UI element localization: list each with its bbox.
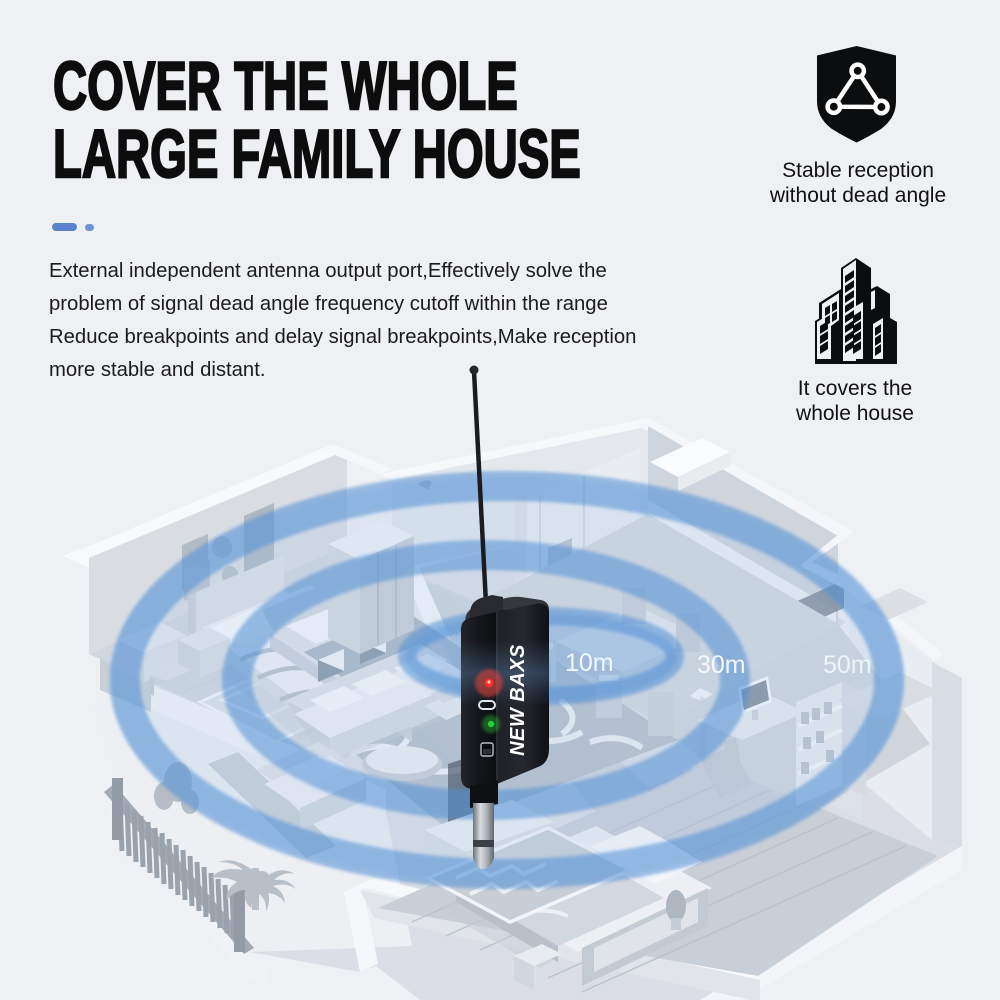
svg-text:50m: 50m xyxy=(823,651,872,679)
svg-text:NEW BAXS: NEW BAXS xyxy=(507,644,529,756)
svg-text:10m: 10m xyxy=(565,649,614,677)
svg-text:30m: 30m xyxy=(697,651,746,679)
